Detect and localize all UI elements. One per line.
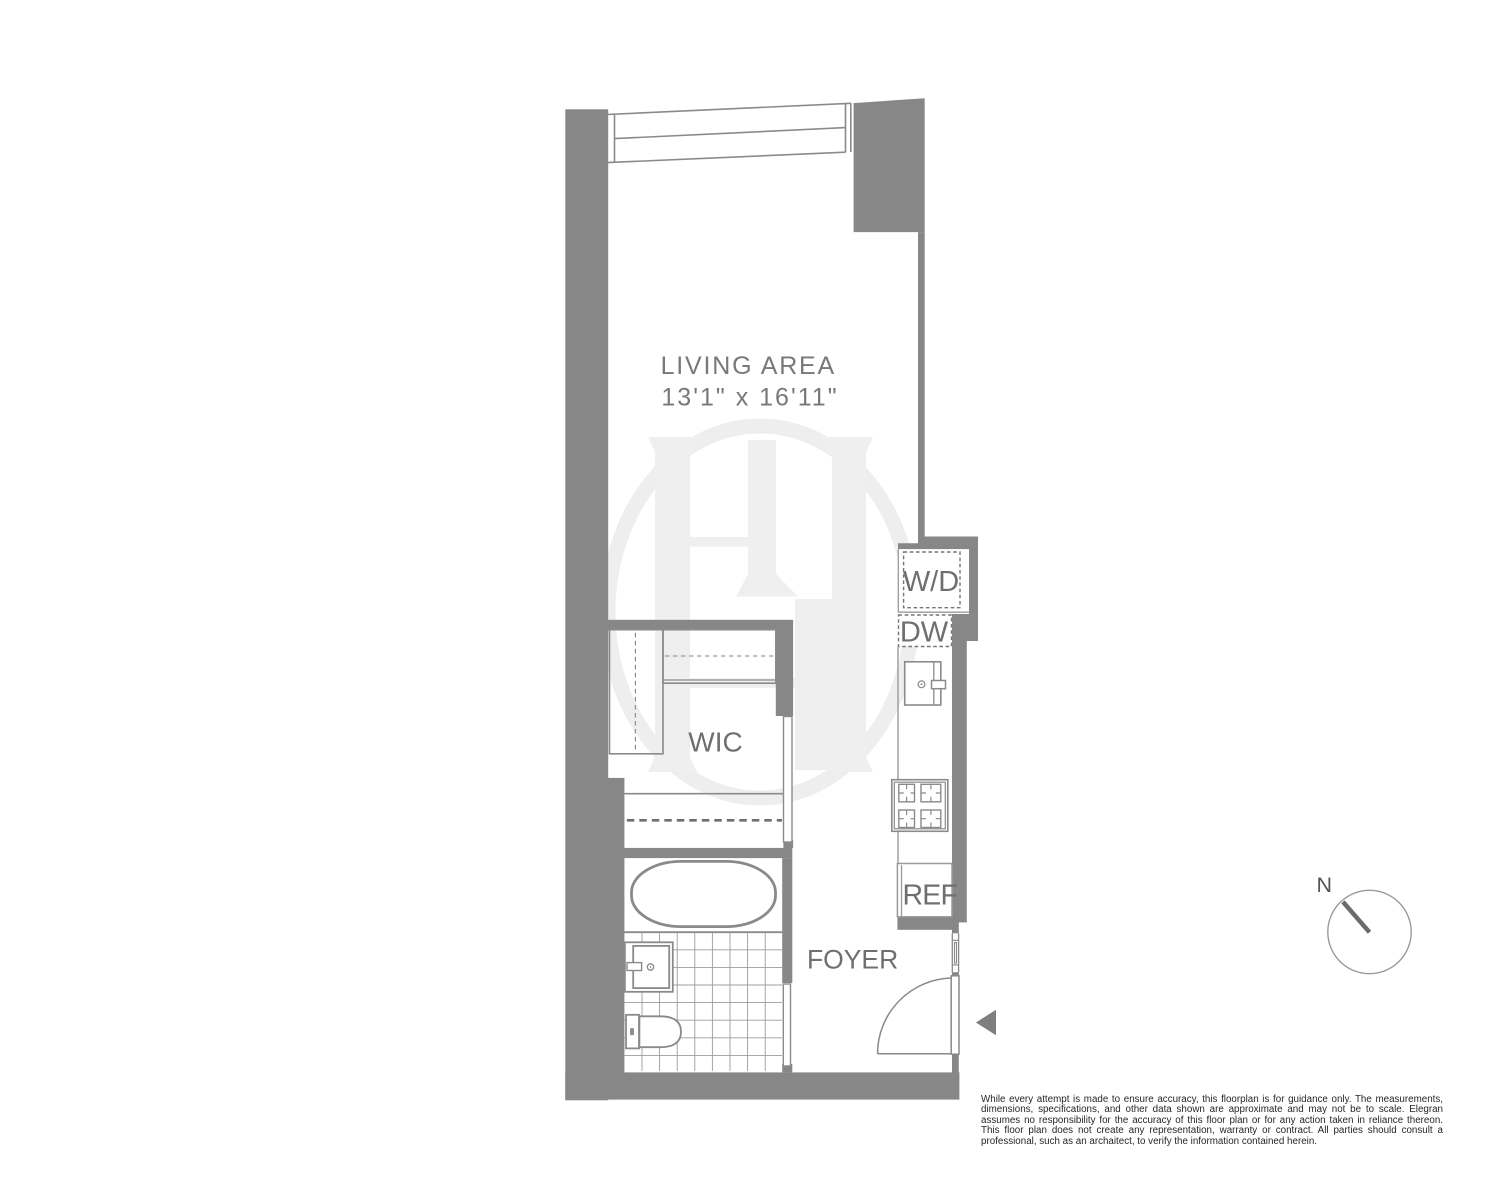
svg-text:DW: DW <box>900 616 949 648</box>
svg-text:WIC: WIC <box>688 727 742 758</box>
svg-text:13'1" x 16'11": 13'1" x 16'11" <box>661 384 838 412</box>
svg-text:FOYER: FOYER <box>807 944 898 974</box>
svg-text:REF: REF <box>903 880 958 912</box>
svg-text:W/D: W/D <box>903 566 959 598</box>
svg-text:LIVING AREA: LIVING AREA <box>661 352 836 380</box>
svg-text:N: N <box>1317 873 1333 897</box>
